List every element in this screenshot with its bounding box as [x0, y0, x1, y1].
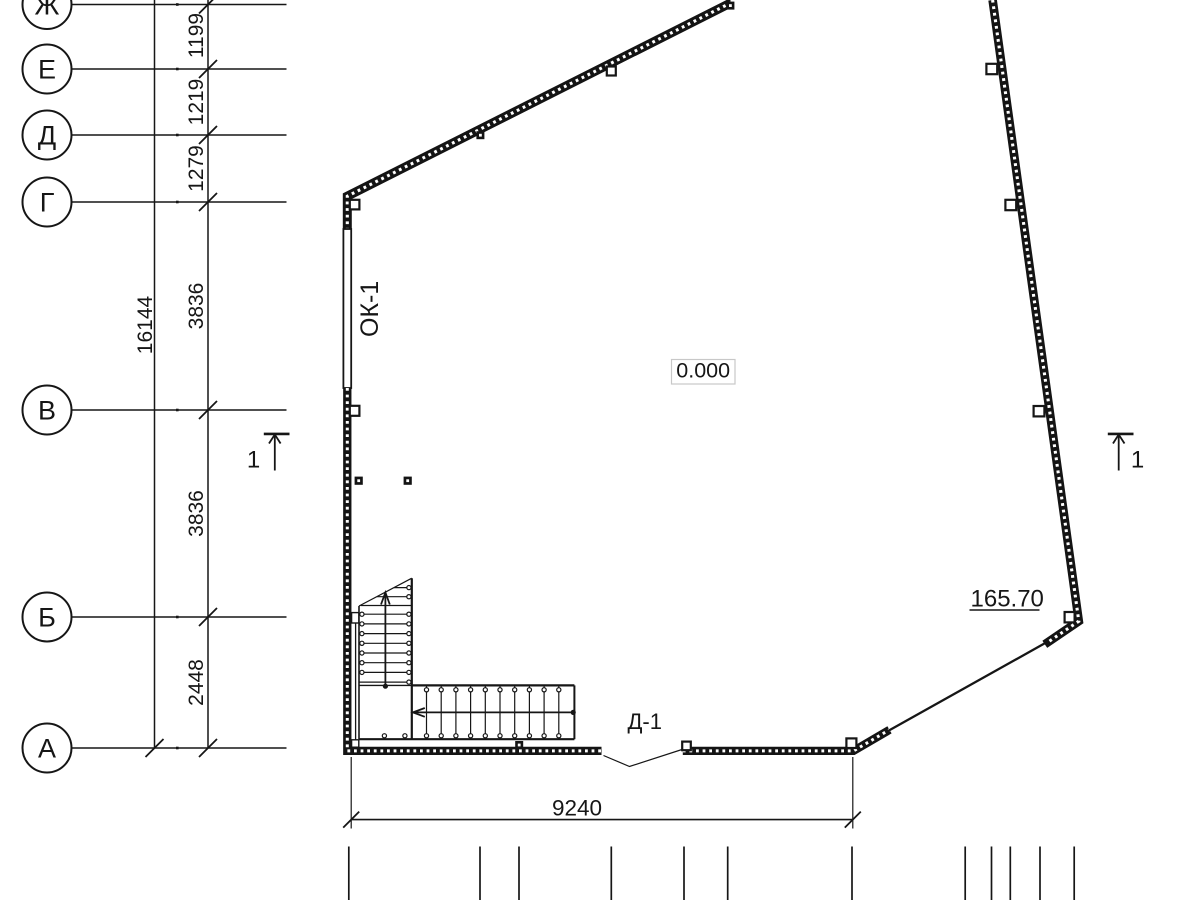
svg-text:3836: 3836 [185, 283, 208, 330]
svg-text:1: 1 [247, 447, 260, 474]
svg-text:В: В [38, 396, 56, 426]
svg-text:1279: 1279 [185, 145, 208, 192]
svg-text:ОК-1: ОК-1 [356, 281, 384, 337]
svg-text:3836: 3836 [185, 490, 208, 537]
svg-text:Е: Е [38, 55, 56, 85]
svg-text:9240: 9240 [552, 796, 602, 821]
svg-text:Г: Г [40, 188, 55, 218]
svg-text:Б: Б [38, 603, 56, 633]
svg-text:Д: Д [38, 121, 56, 151]
svg-text:0.000: 0.000 [676, 359, 730, 383]
svg-text:Д-1: Д-1 [628, 709, 662, 734]
svg-text:165.70: 165.70 [971, 586, 1044, 613]
svg-text:1199: 1199 [185, 13, 208, 58]
svg-text:1: 1 [1131, 447, 1144, 474]
svg-text:1219: 1219 [185, 79, 208, 126]
svg-text:2448: 2448 [185, 659, 208, 706]
svg-text:16144: 16144 [134, 295, 157, 354]
svg-text:А: А [38, 734, 56, 764]
svg-text:Ж: Ж [35, 0, 60, 21]
